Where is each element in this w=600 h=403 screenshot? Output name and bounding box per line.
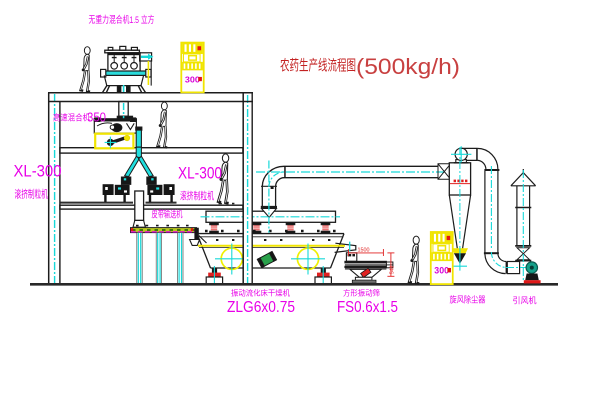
svg-text:1500: 1500	[358, 247, 370, 253]
svg-text:548: 548	[390, 266, 396, 275]
svg-text:农药生产线流程图: 农药生产线流程图	[280, 58, 356, 75]
svg-text:XL-300: XL-300	[14, 162, 62, 181]
svg-text:引风机: 引风机	[513, 295, 537, 306]
svg-text:旋风除尘器: 旋风除尘器	[450, 294, 486, 305]
svg-text:方形振动筛: 方形振动筛	[343, 288, 380, 298]
svg-text:FS0.6x1.5: FS0.6x1.5	[337, 299, 398, 316]
svg-text:滚挤制粒机: 滚挤制粒机	[180, 190, 214, 203]
svg-text:350: 350	[87, 111, 106, 125]
svg-text:滚挤制粒机: 滚挤制粒机	[15, 188, 49, 201]
svg-text:高速混合机: 高速混合机	[53, 112, 90, 123]
svg-text:XL-300: XL-300	[178, 164, 222, 183]
svg-text:(500kg/h): (500kg/h)	[356, 54, 460, 79]
svg-text:ZLG6x0.75: ZLG6x0.75	[227, 299, 295, 316]
svg-text:皮带输送机: 皮带输送机	[152, 209, 183, 221]
svg-text:无重力混合机1.5 立方: 无重力混合机1.5 立方	[89, 14, 155, 26]
svg-text:振动流化床干燥机: 振动流化床干燥机	[231, 288, 290, 298]
